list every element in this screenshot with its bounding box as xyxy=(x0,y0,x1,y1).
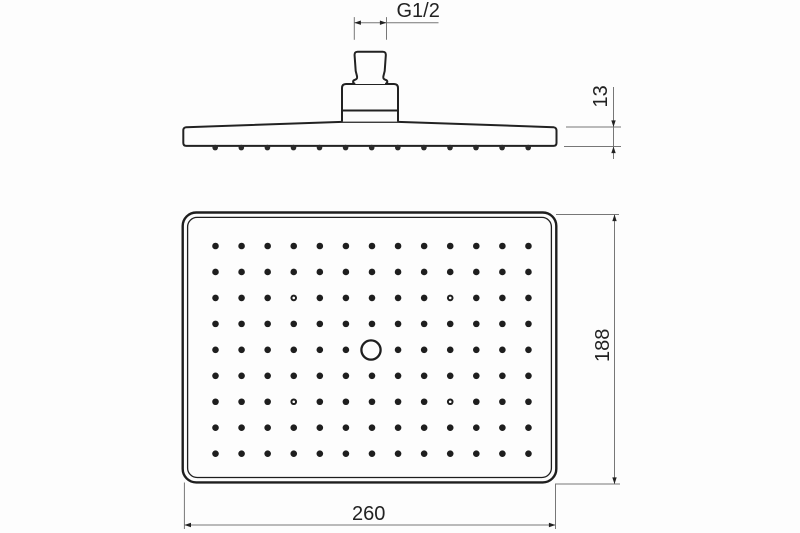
svg-text:G1/2: G1/2 xyxy=(397,0,440,22)
svg-text:188: 188 xyxy=(592,329,614,362)
svg-text:13: 13 xyxy=(590,85,612,107)
svg-text:260: 260 xyxy=(352,503,385,525)
